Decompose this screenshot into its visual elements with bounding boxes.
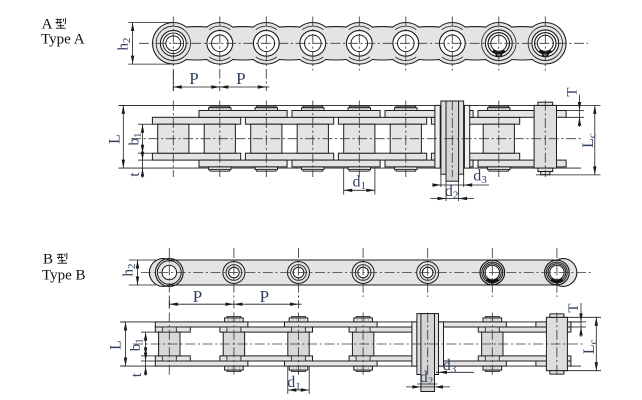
svg-text:A: A — [42, 17, 53, 33]
svg-text:P: P — [236, 69, 245, 88]
svg-text:P: P — [193, 287, 202, 306]
svg-text:P: P — [189, 69, 198, 88]
svg-text:T: T — [565, 87, 581, 96]
svg-text:Type A: Type A — [41, 32, 85, 48]
svg-text:B: B — [43, 252, 53, 268]
svg-text:L: L — [108, 340, 125, 350]
svg-text:Type B: Type B — [42, 268, 86, 284]
svg-text:P: P — [260, 287, 269, 306]
svg-text:T: T — [566, 303, 582, 312]
svg-text:L: L — [106, 134, 123, 144]
